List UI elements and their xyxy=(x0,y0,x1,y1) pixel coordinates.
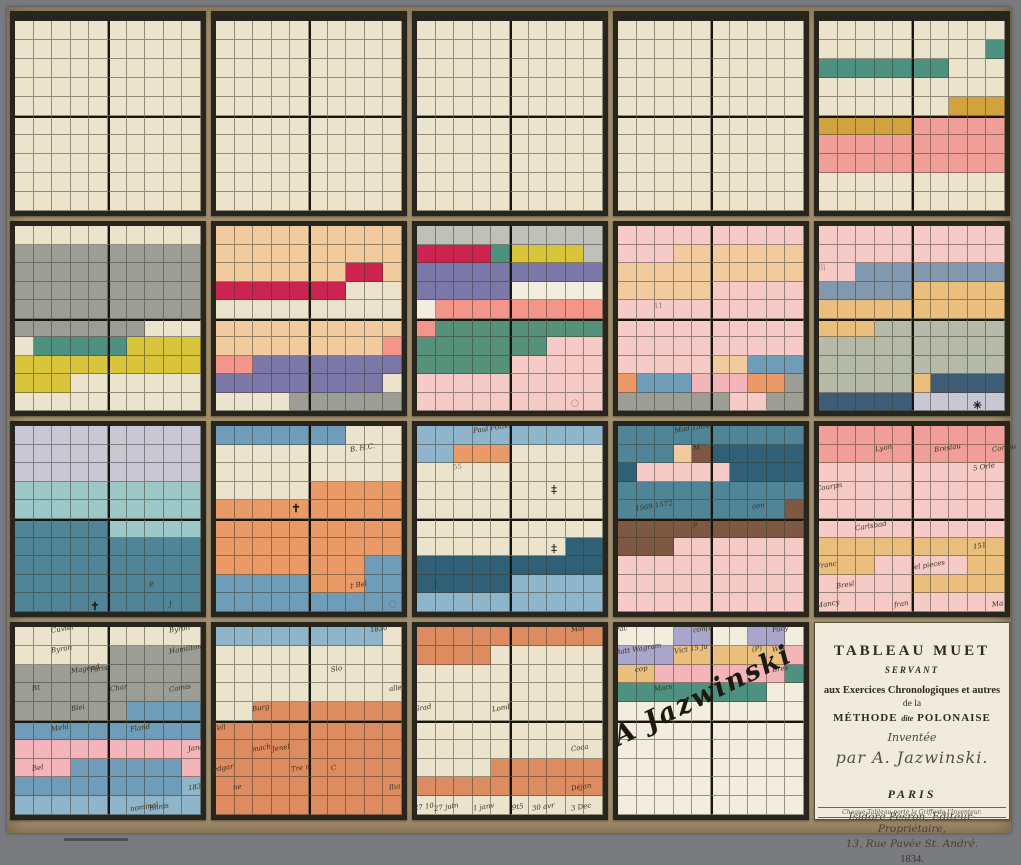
cell xyxy=(785,226,804,245)
cell xyxy=(491,192,510,211)
cell xyxy=(748,116,767,135)
cell xyxy=(692,116,711,135)
cell xyxy=(309,319,328,338)
cell xyxy=(328,575,347,594)
cell xyxy=(436,116,455,135)
panel-r4c4: PacconfuPacyBatt WagramVict 15 ju(P)WGco… xyxy=(613,622,809,820)
cell xyxy=(637,135,656,154)
cell xyxy=(931,593,950,612)
cell xyxy=(949,482,968,501)
cell xyxy=(875,226,894,245)
cell xyxy=(473,665,492,684)
cell xyxy=(383,556,402,575)
cell xyxy=(547,500,566,519)
cell xyxy=(290,393,309,412)
cell xyxy=(785,683,804,702)
cell xyxy=(182,135,201,154)
cell xyxy=(767,575,786,594)
panel-r2c5: ||||✳ xyxy=(814,221,1010,416)
cell xyxy=(986,59,1005,78)
cell xyxy=(711,59,730,78)
cell xyxy=(986,192,1005,211)
cell xyxy=(164,777,183,796)
cell xyxy=(272,683,291,702)
cell xyxy=(968,482,987,501)
cell xyxy=(748,245,767,264)
cell xyxy=(566,173,585,192)
cell xyxy=(34,556,53,575)
cell xyxy=(182,556,201,575)
cell xyxy=(838,40,857,59)
cell xyxy=(145,740,164,759)
cell xyxy=(235,356,254,375)
cell xyxy=(253,500,272,519)
cell xyxy=(127,777,146,796)
cell xyxy=(89,135,108,154)
cell xyxy=(272,21,291,40)
cell xyxy=(71,393,90,412)
cell xyxy=(819,445,838,464)
cell xyxy=(34,21,53,40)
cell xyxy=(529,356,548,375)
cell xyxy=(767,173,786,192)
cell xyxy=(272,40,291,59)
cell xyxy=(216,519,235,538)
cell xyxy=(655,556,674,575)
cell xyxy=(383,646,402,665)
cell xyxy=(767,59,786,78)
cell xyxy=(15,646,34,665)
cell xyxy=(491,556,510,575)
cell xyxy=(417,593,436,612)
cell xyxy=(164,21,183,40)
cell xyxy=(328,393,347,412)
cell xyxy=(618,78,637,97)
cell xyxy=(145,482,164,501)
subtitle-methode: MÉTHODE dite POLONAISE xyxy=(833,712,991,724)
cell xyxy=(819,40,838,59)
cell xyxy=(893,59,912,78)
cell xyxy=(164,393,183,412)
cell xyxy=(767,777,786,796)
cell xyxy=(436,59,455,78)
cell xyxy=(856,173,875,192)
cell xyxy=(655,154,674,173)
cell xyxy=(108,226,127,245)
cell xyxy=(949,173,968,192)
cell xyxy=(767,40,786,59)
cell xyxy=(216,463,235,482)
cell xyxy=(875,500,894,519)
cell xyxy=(968,319,987,338)
cell xyxy=(290,740,309,759)
cell xyxy=(108,40,127,59)
cell xyxy=(893,575,912,594)
cell xyxy=(547,575,566,594)
cell xyxy=(383,575,402,594)
cell xyxy=(253,173,272,192)
cell xyxy=(893,192,912,211)
cell xyxy=(674,337,693,356)
cell xyxy=(346,519,365,538)
cell xyxy=(510,116,529,135)
cell xyxy=(34,575,53,594)
cell xyxy=(309,282,328,301)
symbol-annotation: ✝ xyxy=(90,601,99,612)
cell xyxy=(856,482,875,501)
cell xyxy=(491,646,510,665)
cell xyxy=(473,263,492,282)
cell xyxy=(253,78,272,97)
cell xyxy=(655,226,674,245)
cell xyxy=(912,519,931,538)
cell xyxy=(89,777,108,796)
cell xyxy=(346,59,365,78)
cardboard-backing: ◯11||||✳P.✝JB. H.C.✝‡ Bel◯Paul Potter55‡… xyxy=(7,7,1011,833)
cell xyxy=(510,482,529,501)
cell xyxy=(510,519,529,538)
cell xyxy=(529,646,548,665)
cell xyxy=(674,500,693,519)
cell xyxy=(216,40,235,59)
cell xyxy=(145,356,164,375)
cell xyxy=(272,116,291,135)
cell xyxy=(968,556,987,575)
cell xyxy=(182,796,201,815)
panels-grid: ◯11||||✳P.✝JB. H.C.✝‡ Bel◯Paul Potter55‡… xyxy=(10,11,1010,820)
cell xyxy=(34,356,53,375)
cell xyxy=(383,97,402,116)
cell xyxy=(71,463,90,482)
cell xyxy=(216,426,235,445)
cell xyxy=(584,374,603,393)
cell xyxy=(182,192,201,211)
cell xyxy=(436,538,455,557)
cell xyxy=(767,374,786,393)
cell xyxy=(328,500,347,519)
cell xyxy=(893,538,912,557)
cell xyxy=(182,426,201,445)
cell xyxy=(182,463,201,482)
cell xyxy=(893,154,912,173)
cell xyxy=(71,337,90,356)
cell xyxy=(328,374,347,393)
cell xyxy=(235,245,254,264)
cell xyxy=(272,721,291,740)
cell xyxy=(547,374,566,393)
cell xyxy=(655,482,674,501)
cell xyxy=(383,21,402,40)
cell xyxy=(145,500,164,519)
cell xyxy=(309,740,328,759)
cell xyxy=(365,263,384,282)
cell xyxy=(711,226,730,245)
cell xyxy=(711,116,730,135)
cell xyxy=(145,759,164,778)
cell xyxy=(89,556,108,575)
cell xyxy=(767,245,786,264)
cell xyxy=(819,226,838,245)
cell xyxy=(949,374,968,393)
cell xyxy=(272,135,291,154)
cell xyxy=(365,796,384,815)
cell xyxy=(893,356,912,375)
cell xyxy=(730,393,749,412)
cell xyxy=(711,593,730,612)
panel-r3c1: P.✝J xyxy=(10,421,206,617)
cell xyxy=(748,97,767,116)
cell xyxy=(491,78,510,97)
cell xyxy=(730,116,749,135)
cell xyxy=(328,538,347,557)
cell xyxy=(838,263,857,282)
cell xyxy=(89,393,108,412)
cell xyxy=(436,300,455,319)
cell xyxy=(692,721,711,740)
cell xyxy=(674,627,693,646)
cell xyxy=(692,777,711,796)
cell xyxy=(15,426,34,445)
cell xyxy=(71,500,90,519)
cell xyxy=(856,154,875,173)
cell xyxy=(216,777,235,796)
cell xyxy=(655,319,674,338)
cell xyxy=(637,593,656,612)
cell xyxy=(417,646,436,665)
cell xyxy=(986,426,1005,445)
cell xyxy=(290,519,309,538)
cell xyxy=(71,263,90,282)
cell xyxy=(52,445,71,464)
cell xyxy=(89,97,108,116)
cell xyxy=(838,463,857,482)
cell xyxy=(272,300,291,319)
cell xyxy=(71,519,90,538)
cell xyxy=(52,226,71,245)
cell xyxy=(145,445,164,464)
cell xyxy=(491,721,510,740)
cell xyxy=(931,78,950,97)
cell xyxy=(164,226,183,245)
cell xyxy=(491,245,510,264)
cell xyxy=(473,759,492,778)
cell xyxy=(436,154,455,173)
cell xyxy=(510,593,529,612)
cell xyxy=(89,116,108,135)
cell xyxy=(365,78,384,97)
cell xyxy=(272,263,291,282)
cell xyxy=(417,21,436,40)
cell xyxy=(637,78,656,97)
cell xyxy=(15,500,34,519)
cell xyxy=(491,21,510,40)
cell xyxy=(383,665,402,684)
cell xyxy=(491,759,510,778)
cell xyxy=(436,135,455,154)
cell xyxy=(383,226,402,245)
cell xyxy=(346,556,365,575)
cell xyxy=(52,777,71,796)
cell xyxy=(529,445,548,464)
cell xyxy=(34,646,53,665)
cell xyxy=(584,556,603,575)
cell xyxy=(15,135,34,154)
cell xyxy=(491,683,510,702)
cell xyxy=(290,40,309,59)
cell xyxy=(618,463,637,482)
cell xyxy=(838,538,857,557)
cell xyxy=(748,519,767,538)
cell xyxy=(547,740,566,759)
cell xyxy=(674,282,693,301)
cell xyxy=(730,759,749,778)
cell xyxy=(838,116,857,135)
cell xyxy=(473,393,492,412)
cell xyxy=(711,627,730,646)
cell xyxy=(290,374,309,393)
cell xyxy=(618,173,637,192)
cell xyxy=(15,282,34,301)
cell xyxy=(182,154,201,173)
cell xyxy=(454,500,473,519)
cell xyxy=(692,759,711,778)
cell xyxy=(164,374,183,393)
cell xyxy=(346,135,365,154)
cell xyxy=(785,393,804,412)
cell xyxy=(566,374,585,393)
cell xyxy=(584,226,603,245)
cell xyxy=(692,97,711,116)
cell xyxy=(748,593,767,612)
cell xyxy=(566,116,585,135)
cell xyxy=(566,78,585,97)
cell xyxy=(253,21,272,40)
cell xyxy=(145,426,164,445)
cell xyxy=(819,356,838,375)
cell xyxy=(931,173,950,192)
cell xyxy=(566,519,585,538)
cell xyxy=(108,116,127,135)
cell xyxy=(618,116,637,135)
cell xyxy=(748,482,767,501)
cell xyxy=(637,426,656,445)
cell xyxy=(182,263,201,282)
cell xyxy=(164,282,183,301)
cell xyxy=(145,40,164,59)
ink-annotation: C xyxy=(330,764,336,772)
cell xyxy=(931,21,950,40)
cell xyxy=(637,97,656,116)
subtitle-dela: de la xyxy=(903,699,921,709)
cell xyxy=(618,226,637,245)
cell xyxy=(674,356,693,375)
cell xyxy=(819,116,838,135)
cell xyxy=(71,116,90,135)
cell xyxy=(618,426,637,445)
cell xyxy=(584,319,603,338)
cell xyxy=(912,226,931,245)
cell xyxy=(235,482,254,501)
cell xyxy=(436,97,455,116)
cell xyxy=(931,116,950,135)
cell xyxy=(875,463,894,482)
cell xyxy=(383,796,402,815)
cell xyxy=(346,538,365,557)
cell xyxy=(235,445,254,464)
cell xyxy=(346,356,365,375)
panel-r3c2: B. H.C.✝‡ Bel◯ xyxy=(211,421,407,617)
cell xyxy=(365,374,384,393)
cell xyxy=(692,192,711,211)
cell xyxy=(785,116,804,135)
cell xyxy=(491,463,510,482)
cell xyxy=(986,319,1005,338)
cell xyxy=(15,97,34,116)
cell xyxy=(328,593,347,612)
symbol-annotation: ✝ xyxy=(291,503,300,514)
cell xyxy=(968,374,987,393)
cell xyxy=(253,319,272,338)
cell xyxy=(711,97,730,116)
cell xyxy=(785,245,804,264)
cell xyxy=(618,319,637,338)
cell xyxy=(164,575,183,594)
cell xyxy=(182,445,201,464)
cell xyxy=(346,97,365,116)
cell xyxy=(674,575,693,594)
cell xyxy=(182,282,201,301)
cell xyxy=(253,59,272,78)
cell xyxy=(819,300,838,319)
cell xyxy=(491,393,510,412)
cell xyxy=(949,356,968,375)
cell xyxy=(145,665,164,684)
panel-grid-r2c4 xyxy=(618,226,804,411)
cell xyxy=(182,319,201,338)
cell xyxy=(785,337,804,356)
cell xyxy=(346,226,365,245)
cell xyxy=(473,154,492,173)
cell xyxy=(692,154,711,173)
cell xyxy=(127,226,146,245)
cell xyxy=(637,463,656,482)
cell xyxy=(454,740,473,759)
cell xyxy=(637,192,656,211)
cell xyxy=(346,245,365,264)
cell xyxy=(856,463,875,482)
cell xyxy=(931,135,950,154)
cell xyxy=(309,777,328,796)
cell xyxy=(547,59,566,78)
cell xyxy=(730,482,749,501)
cell xyxy=(674,263,693,282)
cell xyxy=(127,116,146,135)
cell xyxy=(637,59,656,78)
cell xyxy=(454,445,473,464)
cell xyxy=(730,538,749,557)
cell xyxy=(290,702,309,721)
cell xyxy=(566,721,585,740)
cell xyxy=(328,300,347,319)
cell xyxy=(52,519,71,538)
cell xyxy=(618,538,637,557)
cell xyxy=(655,740,674,759)
cell xyxy=(986,356,1005,375)
cell xyxy=(454,116,473,135)
cell xyxy=(235,374,254,393)
cell xyxy=(290,482,309,501)
cell xyxy=(986,300,1005,319)
